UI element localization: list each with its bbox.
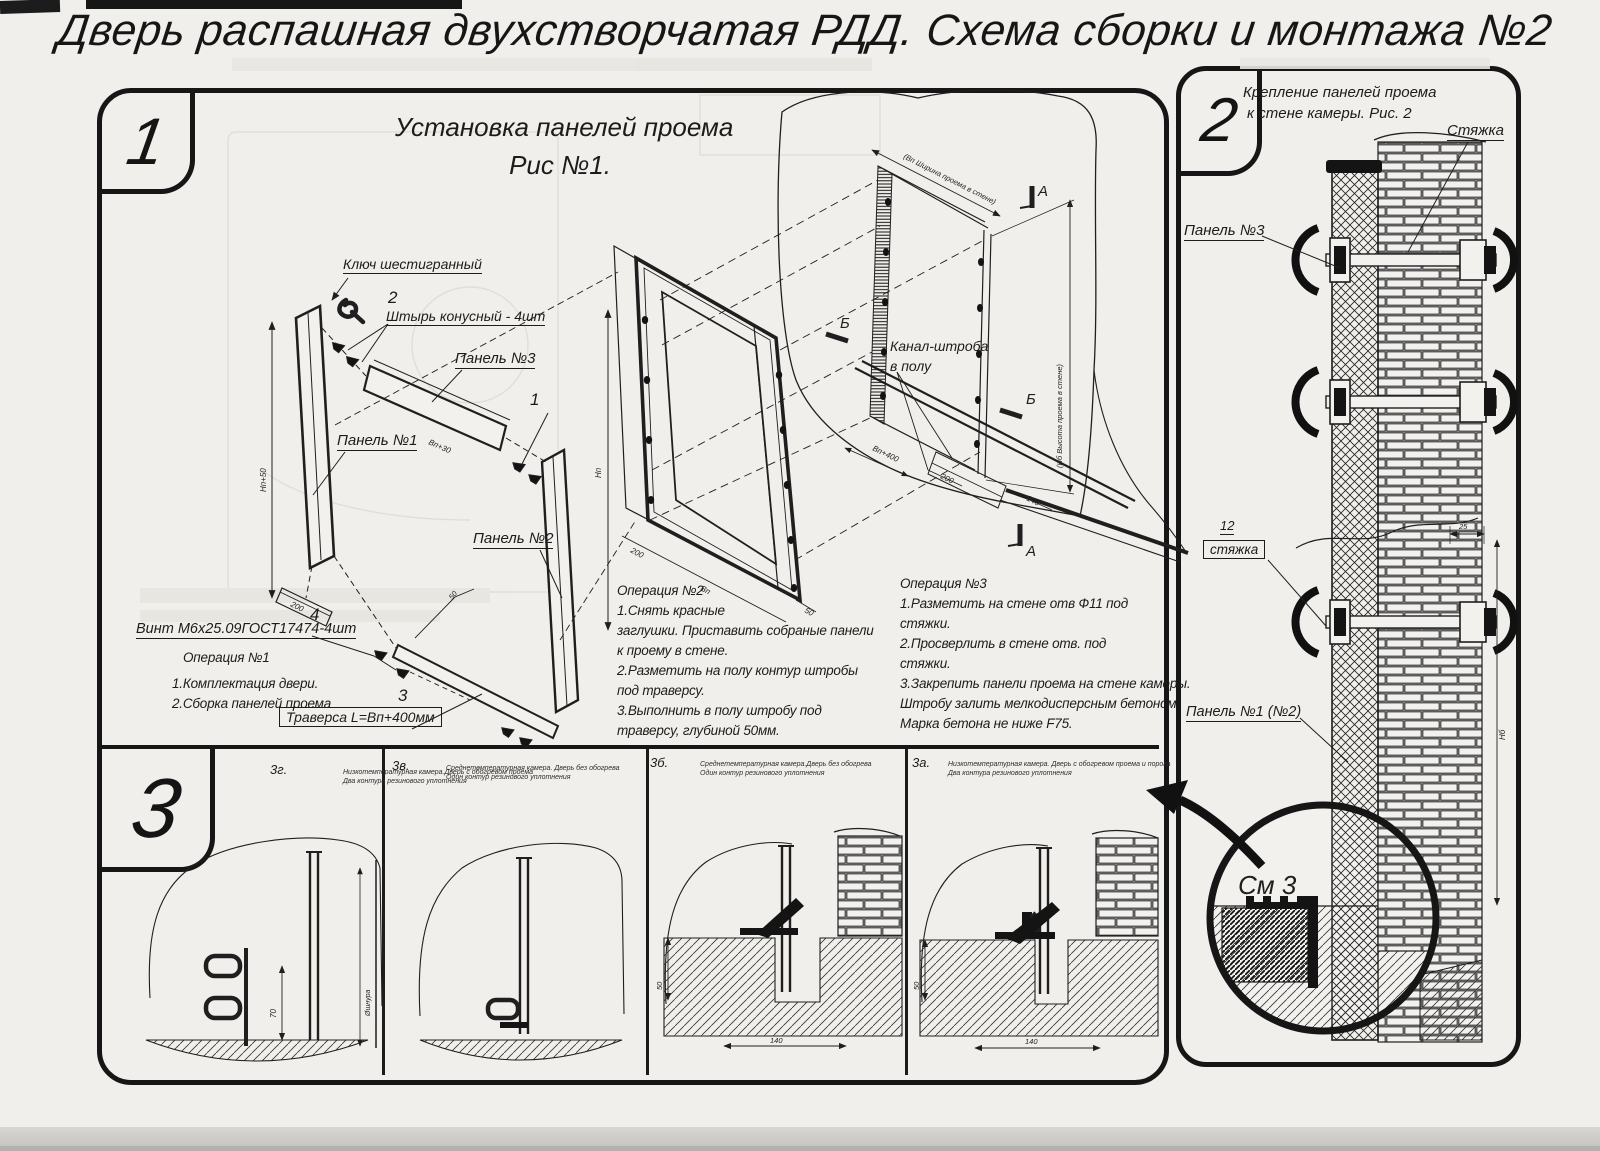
fig2-panel3-label: Панель №3 <box>1184 222 1264 241</box>
sheet-title: Дверь распашная двухстворчатая РДД. Схем… <box>55 6 1581 56</box>
tie-item-number: 12 <box>1220 518 1234 535</box>
view-b-caption-line2: Один контур резинового уплотнения <box>700 769 872 778</box>
operation2-line: 3.Выполнить в полу штробу под <box>617 701 874 721</box>
traverse-item-number: 3 <box>398 686 407 706</box>
operation3-line: 2.Просверлить в стене отв. под <box>900 634 1190 654</box>
tie-label: Стяжка <box>1447 122 1504 141</box>
figure3-number: 3 <box>126 766 186 850</box>
operation2-line: к проему в стене. <box>617 641 874 661</box>
operation3-line: Марка бетона не ниже F75. <box>900 714 1190 734</box>
pin-item-number: 2 <box>388 288 397 308</box>
drawing-sheet: { "page": { "title": "Дверь распашная дв… <box>0 0 1600 1151</box>
figure1-tab: 1 <box>102 93 195 194</box>
operation2-line: траверсу, глубиной 50мм. <box>617 721 874 741</box>
operation1-line: 1.Комплектация двери. <box>172 674 331 694</box>
view-v-caption-line2: Один контур резинового уплотнения <box>446 773 620 782</box>
panel2-label: Панель №2 <box>473 530 553 549</box>
operation3-line: 3.Закрепить панели проема на стене камер… <box>900 674 1190 694</box>
tie-boxed-label: стяжка <box>1203 540 1265 559</box>
operation2-title: Операция №2 <box>617 581 874 601</box>
fig1-title-line1: Установка панелей проема <box>395 112 725 143</box>
figure2-number: 2 <box>1197 90 1241 152</box>
view-v-caption: Среднетемпературная камера. Дверь без об… <box>446 764 620 782</box>
operation3-line: стяжки. <box>900 654 1190 674</box>
fig1-title-line2: Рис №1. <box>395 150 725 181</box>
operation2-line: 2.Разметить на полу контур штробы <box>617 661 874 681</box>
view-divider-2 <box>646 749 649 1075</box>
fig2-title-line1: Крепление панелей проема <box>1243 84 1436 101</box>
operation3-title: Операция №3 <box>900 574 1190 594</box>
panel3-label: Панель №3 <box>455 350 535 369</box>
scan-artifact-bottom-edge <box>0 1146 1600 1151</box>
operation2-line: 1.Снять красные <box>617 601 874 621</box>
view-a-caption: Низкотемпературная камера. Дверь с обогр… <box>948 760 1171 778</box>
section-divider <box>102 745 1159 749</box>
operation2-line: заглушки. Приставить собраные панели <box>617 621 874 641</box>
operation3-line: стяжки. <box>900 614 1190 634</box>
item1-number: 1 <box>530 390 539 410</box>
view-a-caption-line1: Низкотемпературная камера. Дверь с обогр… <box>948 760 1171 769</box>
panel1-label: Панель №1 <box>337 432 417 451</box>
operation1-title: Операция №1 <box>183 648 331 668</box>
scan-artifact-corner <box>0 0 60 14</box>
pin-label: Штырь конусный - 4шт <box>386 308 545 326</box>
screw-label: Винт М6х25.09ГОСТ17474-4шт <box>136 621 356 639</box>
view-v-code: 3в. <box>392 758 410 773</box>
view-divider-3 <box>905 749 908 1075</box>
operation3-line: 1.Разметить на стене отв Ф11 под <box>900 594 1190 614</box>
figure2-panel-border <box>1176 66 1521 1067</box>
view-divider-1 <box>382 749 385 1075</box>
view-a-code: 3а. <box>912 755 930 770</box>
operation2-line: под траверсу. <box>617 681 874 701</box>
fig2-title-line2: к стене камеры. Рис. 2 <box>1247 105 1412 122</box>
figure3-tab: 3 <box>102 749 215 872</box>
view-g-code: 3г. <box>270 762 287 777</box>
panel1-2-label: Панель №1 (№2) <box>1186 704 1301 722</box>
figure1-number: 1 <box>122 108 169 174</box>
operation3-line: Штробу залить мелкодисперсным бетоном <box>900 694 1190 714</box>
view-v-caption-line1: Среднетемпературная камера. Дверь без об… <box>446 764 620 773</box>
channel-label-line1: Канал-штроба <box>890 338 988 354</box>
operation2-block: Операция №2 1.Снять красные заглушки. Пр… <box>617 581 874 741</box>
view-a-caption-line2: Два контура резинового уплотнения <box>948 769 1171 778</box>
operation1-line: 2.Сборка панелей проема <box>172 694 331 714</box>
view-b-code: 3б. <box>650 755 668 770</box>
view-b-caption: Среднетемпературная камера.Дверь без обо… <box>700 760 872 778</box>
operation3-block: Операция №3 1.Разметить на стене отв Ф11… <box>900 574 1190 734</box>
hex-key-label: Ключ шестигранный <box>343 256 482 274</box>
operation1-block: Операция №1 1.Комплектация двери. 2.Сбор… <box>183 648 331 714</box>
view-b-caption-line1: Среднетемпературная камера.Дверь без обо… <box>700 760 872 769</box>
channel-label-line2: в полу <box>890 358 931 374</box>
